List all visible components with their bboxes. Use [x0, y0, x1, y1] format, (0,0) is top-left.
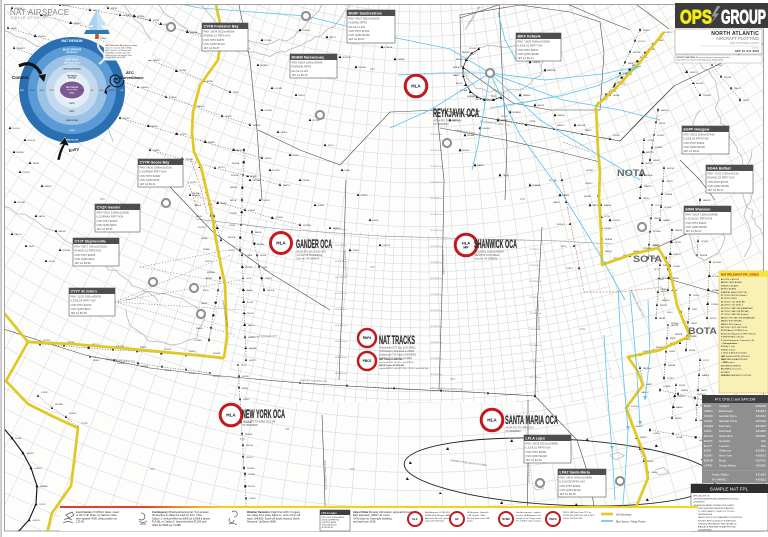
svg-text:FIPNI: FIPNI [670, 338, 676, 340]
svg-text:425702: 425702 [756, 459, 767, 463]
svg-text:PBCS Tracks FL350-390: PBCS Tracks FL350-390 [379, 365, 405, 367]
svg-text:TEMRU: TEMRU [523, 95, 531, 97]
svg-text:KZWY: KZWY [704, 454, 713, 458]
svg-text:BIKF Keflavik: BIKF Keflavik [518, 34, 541, 38]
svg-text:51°N 36W: 51°N 36W [430, 230, 439, 232]
svg-text:CEKFE: CEKFE [276, 217, 284, 219]
svg-text:MEVMI: MEVMI [230, 187, 237, 189]
svg-text:56N050W 55N040W 54N030W 53N020: 56N050W 55N040W 54N030W 53N020W [693, 508, 735, 510]
svg-text:BOBMA: BOBMA [207, 271, 215, 274]
svg-text:CADKO: CADKO [585, 182, 593, 185]
svg-text:HF-only basic extra VHF: HF-only basic extra VHF [467, 517, 490, 520]
svg-text:BIFCA: BIFCA [230, 199, 237, 202]
svg-text:RWY 05/23 2665m/8743ft: RWY 05/23 2665m/8743ft [684, 133, 715, 137]
svg-text:LPLA Lajes: LPLA Lajes [526, 436, 545, 440]
svg-text:TEBFO: TEBFO [353, 250, 360, 252]
svg-text:JET A1 $3.38: JET A1 $3.38 [71, 311, 88, 315]
svg-text:NABRE: NABRE [604, 204, 612, 207]
svg-text:Gander OCA: Gander OCA [719, 419, 738, 423]
svg-text:BIRD: BIRD [704, 404, 712, 408]
svg-text:only do OMNI and HF/VHF.: only do OMNI and HF/VHF. [106, 57, 127, 59]
svg-text:RWY 11/29 2591m/8502ft: RWY 11/29 2591m/8502ft [71, 295, 102, 299]
svg-text:LETTI: LETTI [654, 269, 660, 271]
svg-text:Iceland: Iceland [719, 404, 729, 408]
svg-text:LIKTA: LIKTA [153, 19, 159, 22]
svg-text:RIMBU: RIMBU [74, 23, 81, 25]
svg-text:GUDGE: GUDGE [645, 163, 653, 165]
svg-text:(FPL-N123KT-IG: (FPL-N123KT-IG [693, 496, 710, 498]
svg-text:RNAV/ILS1 RFF5 H24: RNAV/ILS1 RFF5 H24 [75, 249, 102, 253]
svg-text:SASCA: SASCA [675, 229, 683, 232]
svg-text:FUVPE: FUVPE [230, 213, 238, 215]
svg-text:BGBW Narsarsuaq: BGBW Narsarsuaq [292, 55, 324, 59]
svg-text:DEBTE: DEBTE [640, 437, 648, 439]
svg-text:56°N 31W: 56°N 31W [430, 150, 439, 152]
svg-text:RUSMA: RUSMA [303, 224, 311, 227]
svg-text:JET A1 $3.48: JET A1 $3.48 [526, 458, 543, 462]
svg-text:DOBGU: DOBGU [303, 30, 311, 32]
svg-text:CYQX Gander: CYQX Gander [97, 205, 121, 209]
svg-text:COSMO: COSMO [194, 340, 202, 342]
svg-text:DIMSU: DIMSU [281, 132, 288, 134]
svg-text:VEDSI: VEDSI [659, 123, 666, 125]
svg-text:CPDLC: CPDLC [69, 93, 75, 95]
svg-text:JET A1 $2.24: JET A1 $2.24 [518, 56, 535, 60]
svg-text:40W: 40W [520, 197, 526, 201]
svg-text:CUTKE: CUTKE [674, 242, 682, 244]
svg-text:GOVKI: GOVKI [190, 182, 197, 184]
svg-text:52°N 35W: 52°N 35W [529, 329, 538, 331]
svg-text:GROUP: GROUP [721, 7, 766, 29]
svg-text:BGSF Sondrestrom: BGSF Sondrestrom [349, 11, 382, 15]
svg-text:BOGCA: BOGCA [28, 139, 36, 142]
svg-text:CATNO: CATNO [604, 227, 612, 230]
svg-text:DURCA: DURCA [383, 244, 391, 247]
svg-text:LULNU: LULNU [13, 128, 20, 130]
svg-text:49°N 38W: 49°N 38W [430, 262, 439, 264]
svg-text:NASVO: NASVO [557, 124, 565, 127]
svg-text:CEGKI: CEGKI [693, 295, 700, 297]
svg-text:BABBA: BABBA [41, 485, 49, 488]
svg-text:MADGU: MADGU [703, 199, 711, 202]
svg-text:New York: New York [719, 454, 733, 458]
svg-text:E2 FDC ACARS: E2 FDC ACARS [721, 288, 737, 291]
svg-text:REPLU: REPLU [189, 351, 196, 353]
svg-text:JET A1 $6.46: JET A1 $6.46 [292, 73, 309, 77]
svg-text:L Mode S, ADS-B extended: L Mode S, ADS-B extended [721, 352, 747, 355]
svg-text:LASBE: LASBE [220, 202, 227, 205]
svg-text:A1 CPDLC ATN B1: A1 CPDLC ATN B1 [721, 278, 740, 281]
svg-text:REKCI: REKCI [299, 95, 306, 97]
svg-text:R PBN Aprvd, S PBN/O1 etc.: R PBN Aprvd, S PBN/O1 etc. [721, 329, 748, 332]
svg-text:LORCE: LORCE [273, 170, 281, 172]
svg-text:KURPO: KURPO [664, 32, 672, 34]
svg-text:OVN Q350 $1530: OVN Q350 $1530 [686, 225, 708, 229]
svg-text:Arctic Radio: Arctic Radio [712, 473, 729, 477]
svg-text:RAPDO: RAPDO [283, 184, 291, 187]
svg-text:B2 FMC WPR ACARS: B2 FMC WPR ACARS [721, 281, 742, 284]
svg-text:45N: 45N [350, 467, 355, 471]
svg-text:MUFNE: MUFNE [253, 125, 261, 127]
svg-text:TARKI: TARKI [643, 197, 649, 200]
svg-text:45N: 45N [450, 377, 455, 381]
svg-text:T9, and ATC radar airspace.: T9, and ATC radar airspace. [516, 520, 542, 523]
svg-text:FOGFU: FOGFU [169, 97, 177, 99]
svg-text:Gander Dom.: Gander Dom. [719, 414, 738, 418]
svg-text:LORLU: LORLU [653, 433, 660, 435]
svg-text:FOPGU: FOPGU [631, 406, 639, 408]
svg-text:GAKLA: GAKLA [194, 204, 202, 207]
svg-text:NEMKO: NEMKO [17, 48, 25, 50]
svg-text:E Mode C only: E Mode C only [721, 346, 736, 348]
svg-text:431604: 431604 [756, 424, 767, 428]
svg-text:RITBO: RITBO [710, 318, 717, 320]
svg-text:49°N 38W: 49°N 38W [335, 357, 344, 359]
svg-text:LORKO: LORKO [41, 392, 49, 394]
svg-text:B1 RNAV5 all sensors: B1 RNAV5 all sensors [721, 368, 742, 371]
svg-text:LILGI: LILGI [246, 278, 252, 280]
svg-text:FODDI: FODDI [667, 378, 674, 380]
svg-text:NOCLA: NOCLA [267, 289, 275, 292]
svg-text:RNAV/NIL RFF5: RNAV/NIL RFF5 [292, 65, 312, 69]
svg-text:LABRA: LABRA [398, 58, 405, 61]
svg-text:NAT RELEVANT FPL CODES: NAT RELEVANT FPL CODES [721, 272, 759, 276]
svg-text:SEVBI: SEVBI [260, 255, 267, 257]
svg-text:OVN Q350 $920: OVN Q350 $920 [97, 223, 117, 227]
svg-text:OVN Q350 $1680: OVN Q350 $1680 [518, 52, 540, 56]
svg-text:Edmonton: Edmonton [719, 409, 733, 413]
svg-text:SANTA MARIA OCA: SANTA MARIA OCA [505, 415, 558, 427]
svg-text:MIPKE: MIPKE [111, 8, 118, 10]
svg-text:SUBLO: SUBLO [643, 30, 650, 32]
svg-text:Approvals. Aircraft, Operator: Approvals. Aircraft, Operator [425, 517, 452, 520]
svg-text:LIBKI: LIBKI [692, 309, 698, 311]
svg-text:FALDO: FALDO [248, 324, 255, 327]
svg-text:53°N 34W: 53°N 34W [335, 293, 344, 295]
svg-text:—Transponders—: —Transponders— [721, 342, 740, 345]
svg-text:GONNE: GONNE [653, 231, 661, 233]
svg-text:PEBLU: PEBLU [93, 360, 100, 362]
svg-text:PUTCU: PUTCU [501, 116, 509, 118]
svg-text:54°N 33W: 54°N 33W [529, 297, 538, 299]
svg-text:KEKSI: KEKSI [373, 220, 380, 222]
svg-text:SIGLI: SIGLI [667, 312, 673, 314]
svg-text:ILS1/RNAV RFF7 H24: ILS1/RNAV RFF7 H24 [97, 215, 124, 219]
svg-text:TILVO: TILVO [241, 365, 247, 367]
svg-text:JET A1 $4.99: JET A1 $4.99 [75, 261, 92, 265]
svg-text:56N050W0252 BEDRA0047 SELCAL/A: 56N050W0252 BEDRA0047 SELCAL/ABCD [693, 522, 737, 525]
svg-text:HLA: HLA [411, 84, 421, 89]
svg-text:GUTBO: GUTBO [715, 65, 723, 67]
svg-text:JET A1 $3.31: JET A1 $3.31 [140, 182, 157, 186]
svg-text:FEGPA: FEGPA [696, 82, 704, 85]
svg-text:GUDVO: GUDVO [33, 520, 41, 522]
svg-text:GIRVE: GIRVE [225, 116, 232, 118]
svg-text:SILGE: SILGE [679, 385, 686, 387]
svg-text:ILS1/ILS1 RFF8 H24: ILS1/ILS1 RFF8 H24 [526, 446, 551, 450]
svg-text:KOLBI: KOLBI [247, 302, 254, 304]
svg-text:PATLA: PATLA [689, 349, 696, 352]
svg-text:offset by 500ft eg. FL285.: offset by 500ft eg. FL285. [152, 523, 182, 527]
svg-text:JET A1 $3.87: JET A1 $3.87 [204, 46, 221, 50]
svg-text:Comms: Comms [12, 75, 29, 80]
svg-text:OVN 8767 $4310: OVN 8767 $4310 [518, 48, 539, 52]
svg-text:HOSANL RFF5: HOSANL RFF5 [349, 21, 368, 25]
svg-text:Mo-Sa 11-20z: Mo-Sa 11-20z [292, 69, 309, 73]
svg-text:CYFB Frobisher Bay: CYFB Frobisher Bay [204, 24, 239, 28]
svg-text:43°N 44W: 43°N 44W [430, 358, 439, 360]
svg-text:48°N 39W: 48°N 39W [335, 373, 344, 375]
svg-text:MALOT GISTI NERTU TUSKY DCT FL: MALOT GISTI NERTU TUSKY DCT FL370 [693, 510, 735, 513]
svg-text:BALLI: BALLI [483, 98, 489, 101]
svg-text:Montreal: Montreal [719, 429, 731, 433]
svg-text:NUVSA: NUVSA [265, 109, 273, 112]
svg-text:to entire HLA Airspace if trk: to entire HLA Airspace if trk [516, 514, 542, 517]
svg-text:Bodo: Bodo [719, 459, 727, 463]
svg-text:OVN Q350 $790: OVN Q350 $790 [140, 178, 160, 182]
svg-text:NAT HLA (FL285-420): NAT HLA (FL285-420) [63, 68, 81, 71]
svg-text:55°N 32W: 55°N 32W [335, 261, 344, 263]
svg-text:CYYT St John’s: CYYT St John’s [71, 289, 98, 293]
svg-text:CEBTO: CEBTO [265, 278, 273, 280]
svg-text:ENOB: ENOB [704, 459, 713, 463]
svg-text:LUTCI: LUTCI [703, 360, 709, 362]
svg-text:RWY 08/26 3368m/11051ft: RWY 08/26 3368m/11051ft [140, 166, 172, 170]
svg-text:RWY 10/28 3065m/10056ft: RWY 10/28 3065m/10056ft [518, 40, 551, 44]
svg-text:44°N 43W: 44°N 43W [430, 342, 439, 344]
svg-text:LOSNE: LOSNE [123, 15, 131, 17]
svg-text:require RVSM, CPDLC, and RNP10: require RVSM, CPDLC, and RNP10. [379, 361, 415, 364]
svg-text:57°N 30W: 57°N 30W [335, 229, 344, 231]
svg-text:CIFRO: CIFRO [180, 134, 187, 136]
svg-text:OVN Q350 $1220: OVN Q350 $1220 [560, 488, 582, 492]
svg-text:NIFTI: NIFTI [561, 246, 567, 248]
svg-text:HLA: HLA [412, 517, 417, 521]
svg-text:ILS1/VLOC RFF9 H24: ILS1/VLOC RFF9 H24 [686, 217, 713, 221]
svg-text:HF: HF [61, 90, 63, 92]
svg-text:OVN 8767 $1360: OVN 8767 $1360 [140, 174, 161, 178]
svg-text:SUVTA: SUVTA [248, 485, 255, 488]
svg-text:NODBA: NODBA [55, 403, 63, 406]
svg-text:POMCA: POMCA [385, 46, 393, 49]
svg-text:51°N 36W: 51°N 36W [529, 345, 538, 347]
svg-text:425002: 425002 [756, 434, 767, 438]
svg-text:Blue Spruce / Tango Routes: Blue Spruce / Tango Routes [616, 520, 647, 523]
svg-text:TAGFA: TAGFA [205, 277, 212, 280]
svg-text:SAMPLE NAT FPL: SAMPLE NAT FPL [710, 487, 749, 492]
svg-text:57°N 30W: 57°N 30W [430, 134, 439, 136]
svg-text:56°N 31W: 56°N 31W [529, 265, 538, 267]
svg-text:ROMSE: ROMSE [703, 95, 711, 97]
svg-text:JET A1 $3.31: JET A1 $3.31 [97, 227, 114, 231]
svg-text:SADRA: SADRA [668, 364, 676, 367]
svg-text:POMFO: POMFO [69, 413, 77, 415]
svg-text:LAGSU: LAGSU [246, 289, 254, 292]
svg-text:MUFSO: MUFSO [453, 67, 461, 69]
svg-text:BAVPI: BAVPI [478, 164, 485, 167]
svg-text:CECLO: CECLO [246, 457, 254, 459]
svg-text:J4 CPDLC VDL Mode 2: J4 CPDLC VDL Mode 2 [721, 304, 744, 307]
svg-text:RVSM: RVSM [502, 517, 509, 521]
svg-text:ILS1/RNAV RFF7 H24: ILS1/RNAV RFF7 H24 [140, 170, 167, 174]
svg-text:RUSKE: RUSKE [662, 278, 670, 280]
svg-text:RNP10: RNP10 [69, 103, 74, 105]
svg-text:HLA: HLA [487, 418, 497, 423]
svg-text:CEFFA: CEFFA [673, 265, 680, 268]
svg-text:REVRI: REVRI [647, 461, 654, 463]
svg-text:PBCS TRACKS: PBCS TRACKS [66, 86, 79, 89]
svg-text:SONFO: SONFO [533, 62, 541, 64]
svg-text:ROMGU: ROMGU [513, 112, 522, 114]
svg-text:J2 CPDLC HFDL: J2 CPDLC HFDL [721, 298, 738, 300]
svg-text:SEPGE: SEPGE [667, 168, 675, 170]
svg-text:42°N 45W: 42°N 45W [430, 374, 439, 376]
svg-text:COLSA: COLSA [655, 204, 663, 207]
svg-text:RWY 06/24 1830m/6004ft: RWY 06/24 1830m/6004ft [292, 61, 323, 65]
svg-text:require ADS-C with RCP240, CPD: require ADS-C with RCP240, CPDLC with RS… [379, 367, 429, 370]
svg-text:HF Airspace: Shanwick: HF Airspace: Shanwick [467, 511, 489, 514]
svg-text:SURVEIL/ RMK ADS-C RCP240: SURVEIL/ RMK ADS-C RCP240 [721, 374, 752, 377]
svg-text:OVN 8767 $4420: OVN 8767 $4420 [686, 221, 707, 225]
svg-text:OVN Q350 $1660: OVN Q350 $1660 [708, 184, 730, 188]
svg-text:Surveillance: Surveillance [120, 75, 144, 80]
svg-text:EISN: EISN [704, 449, 711, 453]
svg-text:DEBBA: DEBBA [665, 193, 673, 196]
svg-text:431616: 431616 [756, 419, 767, 423]
svg-text:KALGE: KALGE [232, 149, 240, 152]
svg-text:TEGLI: TEGLI [328, 145, 334, 147]
svg-text:TEFME: TEFME [186, 159, 194, 161]
svg-text:RWY 03/21 3109m/10200ft: RWY 03/21 3109m/10200ft [97, 211, 130, 215]
svg-text:CAGFO: CAGFO [678, 395, 686, 398]
svg-text:CUSPI: CUSPI [228, 250, 235, 252]
svg-text:56°N 31W: 56°N 31W [335, 245, 344, 247]
svg-text:54°N 33W: 54°N 33W [335, 277, 344, 279]
svg-text:MUVRI: MUVRI [189, 373, 196, 375]
svg-text:KEKGU: KEKGU [63, 5, 71, 7]
svg-text:RUBRA: RUBRA [533, 184, 541, 187]
svg-text:MUCNI: MUCNI [724, 77, 731, 79]
svg-text:KEGSO: KEGSO [483, 128, 491, 130]
svg-text:EGPX: EGPX [704, 439, 713, 443]
svg-text:CDQX: CDQX [704, 414, 713, 418]
svg-text:NELKI: NELKI [196, 216, 202, 218]
svg-text:55°N 32W: 55°N 32W [430, 166, 439, 168]
svg-text:NAT Tracks FL290-390: NAT Tracks FL290-390 [379, 358, 403, 361]
svg-text:NAT HLA: NAT HLA [66, 58, 80, 62]
svg-text:RAFBO: RAFBO [45, 185, 53, 188]
svg-text:LETLE: LETLE [712, 276, 719, 278]
svg-text:55N: 55N [150, 467, 155, 471]
svg-text:Tracks FL350-FL390: Tracks FL350-FL390 [563, 517, 583, 520]
svg-text:SEVDI: SEVDI [538, 105, 545, 107]
svg-text:ATC CPDLC and SATCOM: ATC CPDLC and SATCOM [715, 398, 756, 402]
svg-text:MUGTA: MUGTA [228, 236, 236, 239]
svg-text:Shanwick: Shanwick [719, 434, 733, 438]
svg-text:LPPO: LPPO [704, 464, 713, 468]
svg-text:SAGRU: SAGRU [27, 452, 35, 455]
svg-text:RWY 16/34 2622m/8605ft: RWY 16/34 2622m/8605ft [204, 30, 235, 34]
svg-text:Santa Maria: Santa Maria [719, 464, 736, 468]
svg-text:RIDRI: RIDRI [233, 92, 239, 94]
svg-text:OVN 8767 $2450: OVN 8767 $2450 [97, 219, 118, 223]
svg-text:NIVNI: NIVNI [743, 100, 749, 102]
svg-text:GIVMO: GIVMO [361, 195, 368, 197]
svg-text:DECGE: DECGE [633, 52, 641, 54]
svg-text:J5 CPDLC SATCOM (INMARSAT): J5 CPDLC SATCOM (INMARSAT) [721, 307, 753, 310]
svg-text:RNAV/ILS3 RFF7 H24: RNAV/ILS3 RFF7 H24 [708, 176, 735, 180]
svg-text:VHF: VHF [120, 90, 123, 92]
svg-text:PBCS: PBCS [363, 359, 372, 363]
svg-text:CEMFI: CEMFI [153, 150, 160, 152]
svg-text:ROGPE: ROGPE [213, 376, 221, 378]
svg-text:LEGMU: LEGMU [38, 36, 46, 38]
svg-text:ROFDA: ROFDA [359, 66, 367, 69]
svg-text:FATGU: FATGU [265, 157, 272, 160]
svg-text:KOTNU: KOTNU [313, 120, 321, 122]
svg-text:CINVE: CINVE [229, 225, 236, 227]
svg-text:OVN Q350 $920: OVN Q350 $920 [75, 257, 95, 261]
svg-text:Scottish: Scottish [719, 439, 730, 443]
svg-text:RUCRE: RUCRE [245, 267, 253, 269]
svg-text:KATMU: KATMU [584, 195, 592, 198]
svg-text:—PBN codes—: —PBN codes— [721, 362, 737, 364]
svg-text:431601: 431601 [756, 409, 767, 413]
svg-text:35N: 35N [370, 265, 375, 269]
svg-text:MEPRA: MEPRA [643, 367, 651, 370]
svg-text:FL350-390 (PBCS) FL350-1,390 T: FL350-390 (PBCS) FL350-1,390 T [563, 515, 596, 517]
svg-text:PBCS: NAT from Lanz TDY on: PBCS: NAT from Lanz TDY on [563, 511, 592, 514]
svg-text:J6 CPDLC SATCOM (MTSAT): J6 CPDLC SATCOM (MTSAT) [721, 310, 749, 313]
svg-text:London: London [719, 444, 730, 448]
svg-text:50°N 37W: 50°N 37W [529, 361, 538, 363]
svg-text:MOSTI: MOSTI [661, 291, 668, 293]
svg-text:52°N 35W: 52°N 35W [335, 309, 344, 311]
svg-text:DOKTE: DOKTE [613, 220, 621, 222]
svg-text:TENVI: TENVI [503, 175, 510, 177]
svg-text:SAPVI: SAPVI [701, 389, 708, 392]
svg-text:NEW YORK OCA: NEW YORK OCA [242, 409, 285, 421]
svg-text:FINME: FINME [201, 238, 208, 240]
svg-text:BOTA: BOTA [688, 326, 718, 336]
svg-text:MIVMI: MIVMI [293, 155, 299, 157]
svg-text:Datalink required – applies: Datalink required – applies [516, 511, 541, 514]
svg-text:431609: 431609 [756, 473, 767, 477]
svg-text:57°N 30W: 57°N 30W [529, 249, 538, 251]
svg-text:Moncton: Moncton [719, 424, 731, 428]
svg-text:AIRCRAFT PLOTTING: AIRCRAFT PLOTTING [716, 36, 759, 41]
svg-text:SOVFU: SOVFU [701, 241, 709, 243]
svg-text:EGAA Belfast: EGAA Belfast [708, 166, 732, 170]
svg-text:RVSM CS OVHD: RVSM CS OVHD [66, 120, 78, 122]
svg-text:ILS3/ILS3 RFF9 H24: ILS3/ILS3 RFF9 H24 [684, 137, 709, 141]
svg-text:NICVU: NICVU [456, 59, 463, 61]
svg-text:GANKU: GANKU [641, 391, 649, 394]
svg-text:OVN Q350 $1260: OVN Q350 $1260 [349, 33, 371, 37]
svg-text:NAT REGION: NAT REGION [61, 39, 83, 43]
svg-text:FOSSE: FOSSE [265, 40, 273, 42]
svg-text:HLA: HLA [226, 413, 236, 418]
svg-text:CIRCLE OF ENTRY: CIRCLE OF ENTRY [11, 16, 49, 20]
svg-text:OVN 8767 $2090: OVN 8767 $2090 [526, 450, 547, 454]
svg-text:HF 8906/8825: HF 8906/8825 [243, 424, 259, 427]
svg-text:HF 8906/5691: HF 8906/5691 [434, 123, 450, 126]
svg-text:JET A1 $3.01: JET A1 $3.01 [684, 149, 701, 153]
svg-text:approval FL285-420.: approval FL285-420. [425, 520, 445, 523]
svg-text:47°N 40W: 47°N 40W [430, 294, 439, 296]
svg-text:OVN 8767 $7400: OVN 8767 $7400 [349, 29, 370, 33]
svg-text:LPAZ Santa Maria: LPAZ Santa Maria [560, 470, 591, 474]
